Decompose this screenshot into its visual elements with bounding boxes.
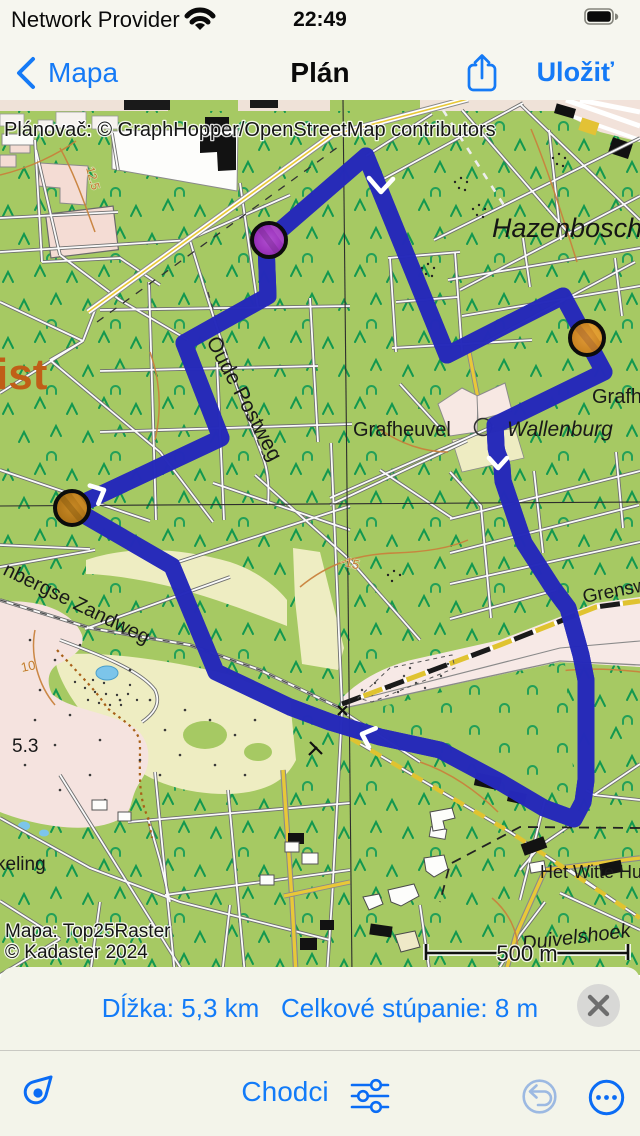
svg-text:Mapa: Top25Raster: Mapa: Top25Raster xyxy=(5,921,171,942)
svg-text:Wallenburg: Wallenburg xyxy=(507,418,613,441)
svg-text:© Kadaster 2024: © Kadaster 2024 xyxy=(5,942,148,963)
svg-text:5.3: 5.3 xyxy=(12,736,38,757)
svg-text:Het Witte Hu: Het Witte Hu xyxy=(540,862,640,882)
svg-text:500 m: 500 m xyxy=(496,941,557,966)
svg-text:keling: keling xyxy=(0,854,46,875)
svg-text:Grafheuvel: Grafheuvel xyxy=(353,419,451,441)
svg-text:Plánovač: © GraphHopper/OpenSt: Plánovač: © GraphHopper/OpenStreetMap co… xyxy=(4,119,496,141)
svg-text:ist: ist xyxy=(0,350,48,399)
svg-text:Grafhe: Grafhe xyxy=(592,386,640,408)
svg-text:10: 10 xyxy=(20,657,37,675)
svg-text:Hazenbosch: Hazenbosch xyxy=(492,213,640,243)
